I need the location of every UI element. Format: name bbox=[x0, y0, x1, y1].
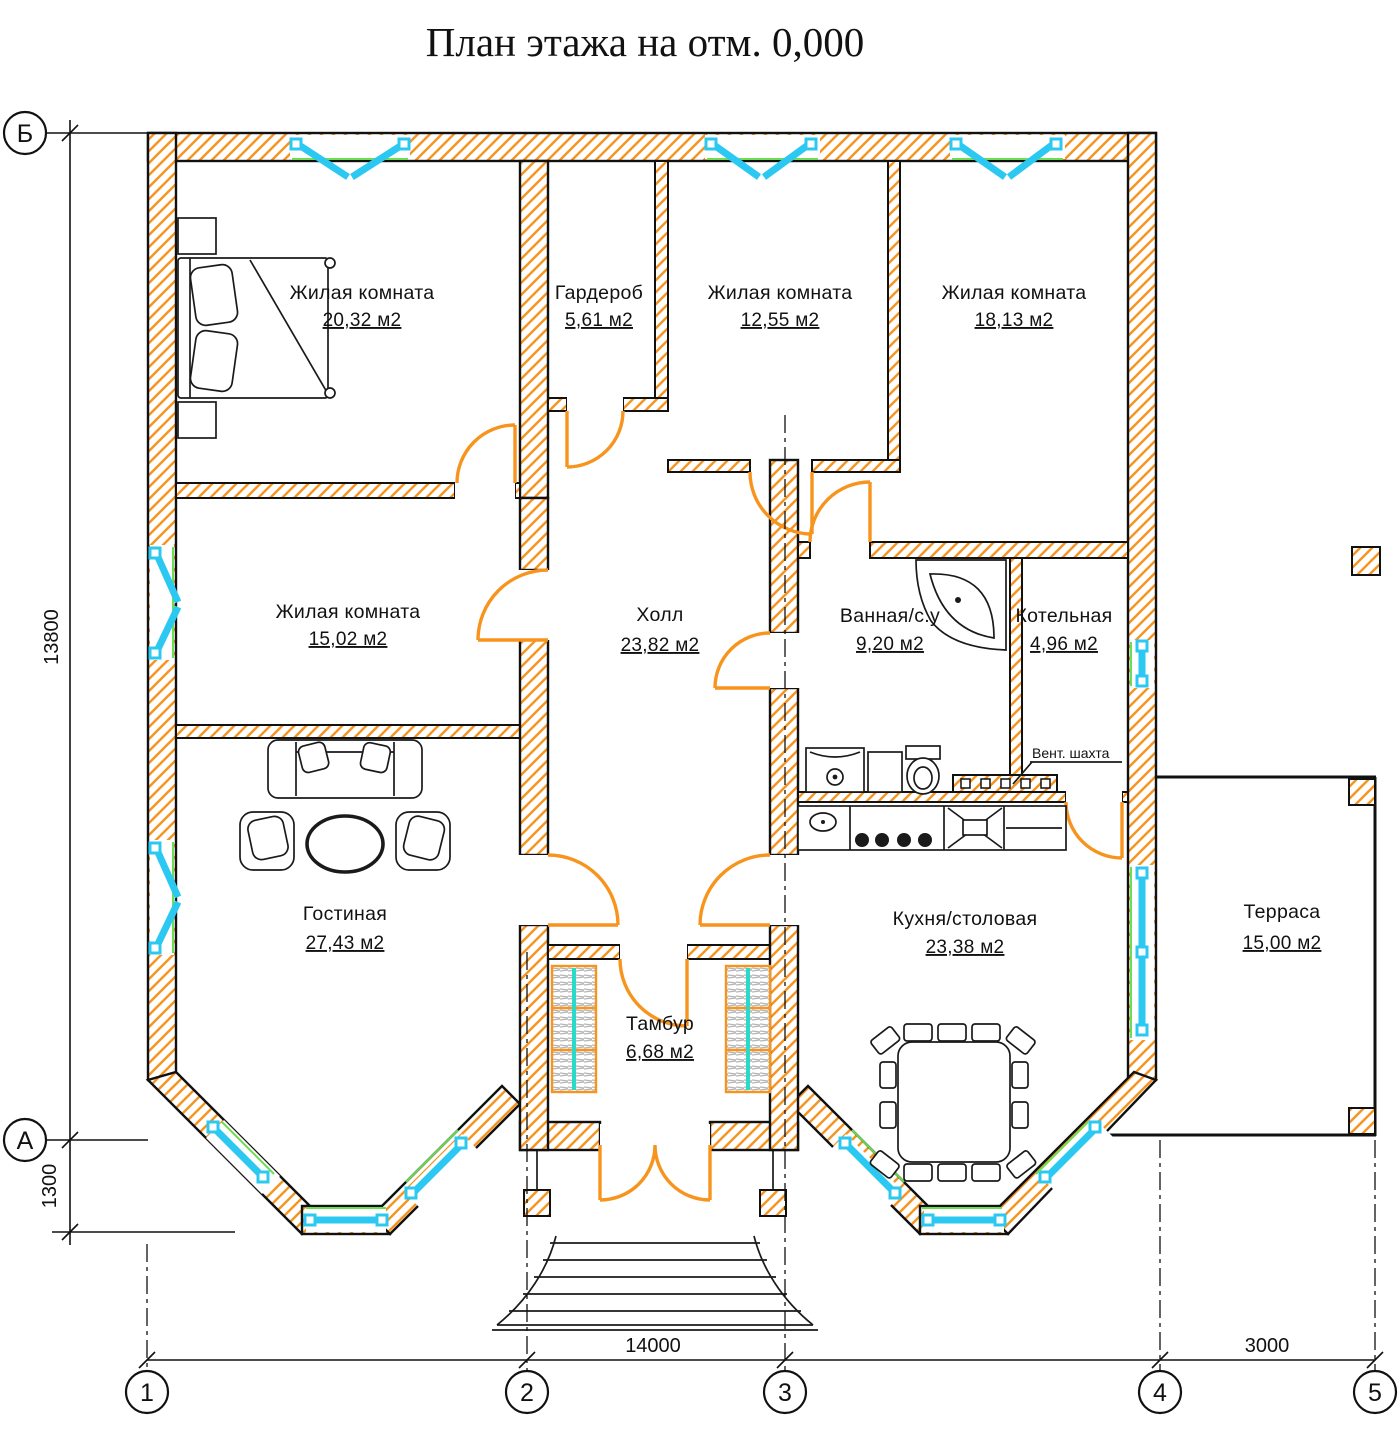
room-label: Котельная bbox=[1015, 605, 1112, 627]
cabinet-icon bbox=[868, 752, 902, 792]
dim-width-terrace: 3000 bbox=[1245, 1335, 1290, 1357]
room-label: Гардероб bbox=[555, 282, 643, 304]
terrace-post-icon bbox=[1349, 1108, 1375, 1134]
free-post-icon bbox=[1352, 547, 1380, 575]
sofa-icon bbox=[268, 740, 422, 798]
entrance-steps-icon bbox=[492, 1236, 818, 1330]
room-area: 4,96 м2 bbox=[1030, 634, 1098, 655]
vent-shaft: Вент. шахта bbox=[953, 745, 1122, 792]
room-label: Жилая комната bbox=[942, 282, 1087, 304]
axis-label-1: 1 bbox=[140, 1379, 154, 1407]
axis-label-b: Б bbox=[17, 120, 33, 148]
room-label: Жилая комната bbox=[708, 282, 853, 304]
axis-label-4: 4 bbox=[1153, 1379, 1167, 1407]
kitchen-counter-icon bbox=[798, 806, 1066, 850]
room-area: 20,32 м2 bbox=[323, 310, 402, 331]
floor-plan-drawing: План этажа на отм. 0,000 bbox=[0, 0, 1400, 1431]
dimension-texts: 13800 1300 14000 3000 bbox=[39, 609, 1289, 1357]
room-area: 12,55 м2 bbox=[741, 310, 820, 331]
room-label: Ванная/с.у bbox=[840, 605, 940, 627]
room-area: 23,38 м2 bbox=[926, 937, 1005, 958]
room-area: 18,13 м2 bbox=[975, 310, 1054, 331]
room-area: 15,00 м2 bbox=[1243, 933, 1322, 954]
floor-plan-page: План этажа на отм. 0,000 bbox=[0, 0, 1400, 1431]
axis-label-2: 2 bbox=[520, 1379, 534, 1407]
coffee-table-icon bbox=[307, 816, 383, 872]
room-area: 9,20 м2 bbox=[856, 634, 924, 655]
bed-icon bbox=[178, 218, 335, 438]
room-area: 15,02 м2 bbox=[309, 629, 388, 650]
room-area: 6,68 м2 bbox=[626, 1042, 694, 1063]
vent-shaft-label: Вент. шахта bbox=[1032, 745, 1110, 761]
porch-post-icon bbox=[524, 1190, 550, 1216]
dim-porch-offset: 1300 bbox=[39, 1164, 61, 1209]
axis-label-a: А bbox=[17, 1127, 34, 1155]
page-title: План этажа на отм. 0,000 bbox=[426, 19, 864, 65]
washing-machine-icon bbox=[806, 748, 864, 792]
room-label: Гостиная bbox=[303, 903, 387, 925]
room-label: Холл bbox=[636, 604, 683, 626]
room-area: 27,43 м2 bbox=[306, 933, 385, 954]
room-label: Терраса bbox=[1244, 901, 1321, 923]
terrace-post-icon bbox=[1349, 779, 1375, 805]
room-label: Жилая комната bbox=[290, 282, 435, 304]
dim-width-main: 14000 bbox=[625, 1335, 681, 1357]
porch-post-icon bbox=[760, 1190, 786, 1216]
axis-label-3: 3 bbox=[778, 1379, 792, 1407]
axis-label-5: 5 bbox=[1368, 1379, 1382, 1407]
room-area: 23,82 м2 bbox=[621, 635, 700, 656]
room-label: Тамбур bbox=[626, 1013, 694, 1035]
dining-table-icon bbox=[869, 1024, 1037, 1181]
room-label: Кухня/столовая bbox=[893, 908, 1038, 930]
room-label: Жилая комната bbox=[276, 601, 421, 623]
toilet-icon bbox=[906, 746, 940, 794]
room-area: 5,61 м2 bbox=[565, 310, 633, 331]
dim-height-total: 13800 bbox=[41, 609, 63, 665]
